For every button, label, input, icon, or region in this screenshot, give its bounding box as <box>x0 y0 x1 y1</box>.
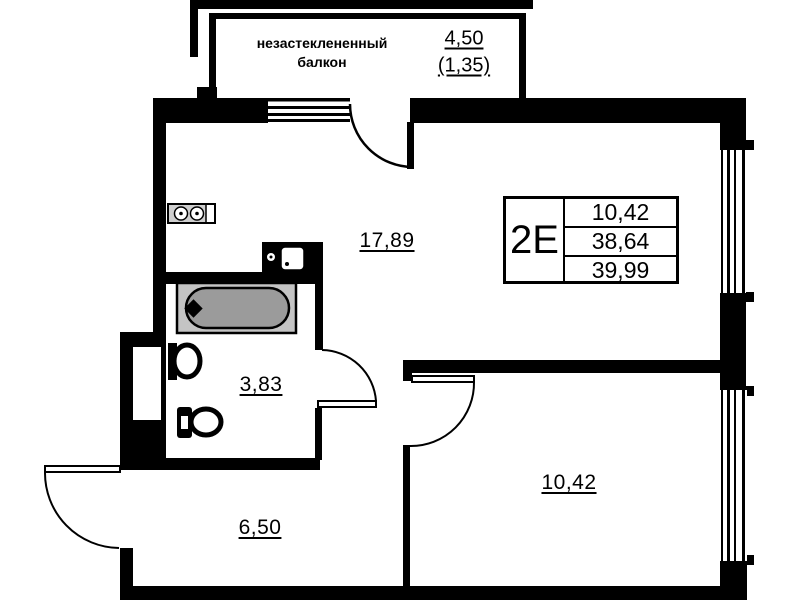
kitchen-sink-icon <box>262 242 323 274</box>
wall-balcony-outer-top <box>197 0 533 9</box>
wall-shaft-left <box>120 347 133 420</box>
balcony-door-arc <box>350 104 413 167</box>
floor-plan-svg <box>0 0 799 600</box>
window-nub <box>746 555 754 565</box>
wall-bathroom-bottom <box>158 458 320 470</box>
wall-right-lower <box>720 561 747 600</box>
entry-door-arc <box>45 472 119 548</box>
balcony-label-line1: незастеклененный <box>257 34 388 53</box>
window-nub <box>746 140 754 150</box>
balcony-label: незастеклененный балкон <box>257 34 388 72</box>
balcony-window <box>268 98 350 122</box>
window-nub <box>746 292 754 302</box>
living-room-window <box>720 150 746 293</box>
apartment-info-value: 38,64 <box>565 228 676 257</box>
wall-left-upper <box>153 98 166 334</box>
bathroom-door-arc <box>322 350 376 401</box>
wall-balcony-right <box>519 13 526 98</box>
stove-icon <box>168 204 215 223</box>
bedroom-area-label: 10,42 <box>541 471 596 495</box>
bedroom-door-arc <box>410 382 474 446</box>
wall-bathroom-right-lower <box>315 408 322 460</box>
wall-balcony-top <box>209 13 526 19</box>
window-nub <box>746 386 754 396</box>
wall-hallway-bedroom <box>403 445 410 590</box>
bedroom-window <box>720 390 747 561</box>
wall-top-right-segment <box>410 98 746 123</box>
apartment-type-label: 2Е <box>506 199 565 281</box>
hallway-area-label: 6,50 <box>239 516 282 540</box>
apartment-info-values: 10,42 38,64 39,99 <box>565 199 676 281</box>
wall-living-bedroom-stub <box>403 373 412 381</box>
wall-living-bedroom <box>403 360 746 373</box>
wall-top-left-segment <box>153 98 268 123</box>
wall-bottom <box>120 586 747 600</box>
bedroom-door <box>410 376 474 446</box>
balcony-label-line2: балкон <box>257 53 388 72</box>
balcony-door <box>350 104 414 169</box>
fixtures <box>168 204 323 438</box>
bathroom-area-label: 3,83 <box>240 373 283 397</box>
wall-right-upper <box>720 98 746 150</box>
apartment-info-box: 2Е 10,42 38,64 39,99 <box>503 196 679 284</box>
wall-bathroom-right-upper <box>315 284 323 350</box>
washbasin-icon <box>168 343 200 380</box>
toilet-icon <box>177 407 221 438</box>
wall-balcony-outer-left <box>190 0 198 57</box>
windows <box>268 98 747 561</box>
apartment-info-value: 10,42 <box>565 199 676 228</box>
entry-door <box>45 466 120 548</box>
bathtub-icon <box>177 283 296 333</box>
wall-right-middle <box>720 293 746 390</box>
balcony-area-label: 4,50 <box>445 28 484 51</box>
bathroom-door <box>318 350 376 407</box>
wall-shaft-top <box>120 332 166 347</box>
floor-plan: незастеклененный балкон 4,50 (1,35) 17,8… <box>0 0 799 600</box>
apartment-info-value: 39,99 <box>565 257 676 284</box>
living-room-area-label: 17,89 <box>359 229 414 253</box>
wall-shaft-right-line <box>161 347 166 420</box>
wall-balcony-left <box>209 13 216 98</box>
balcony-area-coeff-label: (1,35) <box>438 55 490 78</box>
